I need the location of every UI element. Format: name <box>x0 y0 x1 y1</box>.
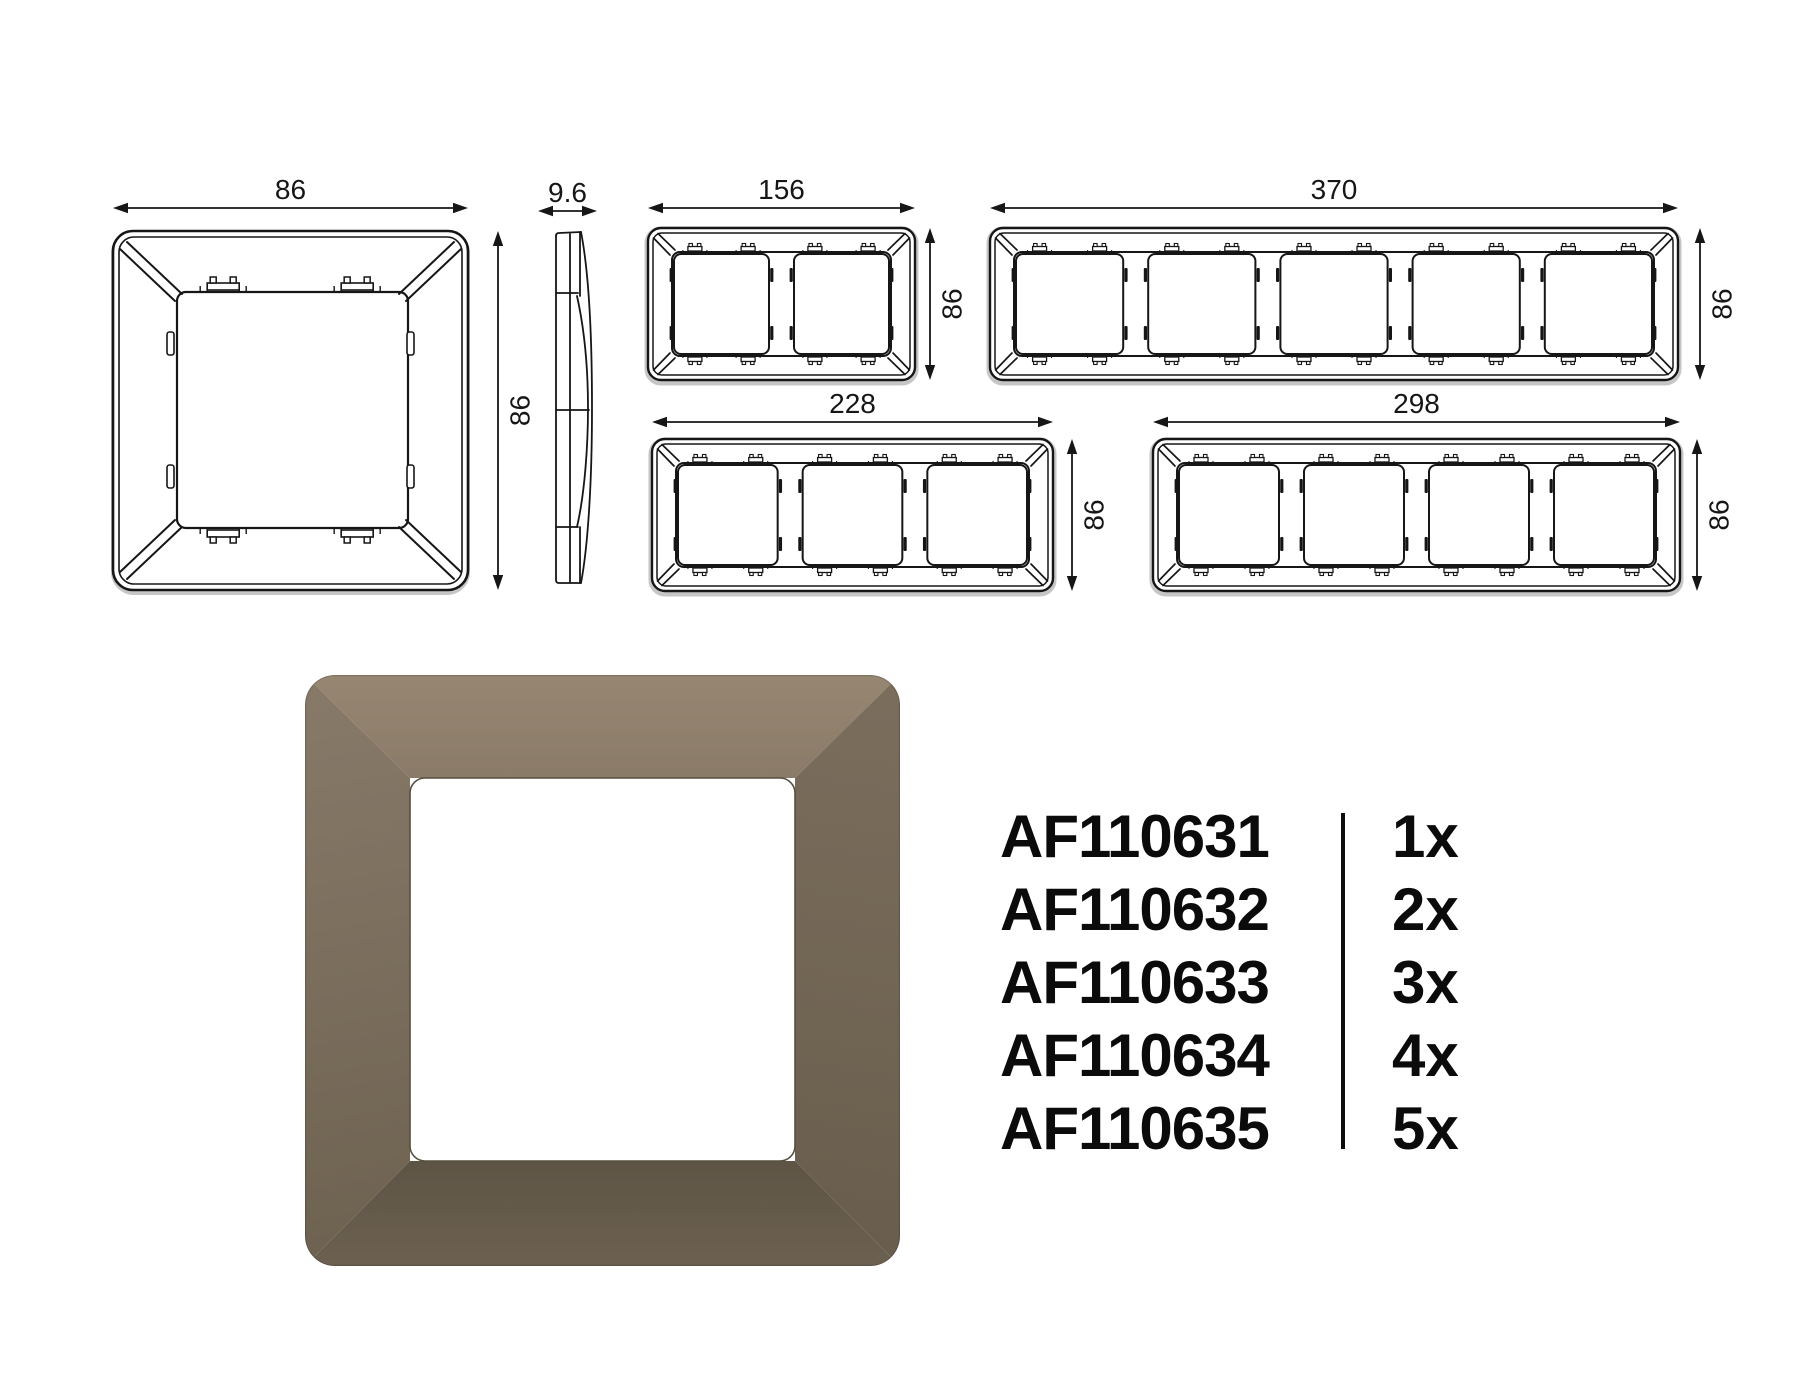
frame-5-gang-drawing: 37086 <box>989 174 1738 383</box>
product-code: AF110632 <box>1000 875 1392 944</box>
dimension-label: 228 <box>829 388 876 419</box>
product-render <box>305 675 900 1266</box>
frame-1-gang-drawing: 8686 <box>113 174 536 593</box>
frame-2-gang-drawing: 15686 <box>647 174 968 383</box>
product-quantity: 4x <box>1392 1021 1459 1090</box>
product-row: AF1106333x <box>1000 946 1459 1019</box>
dimension-label: 86 <box>1704 499 1735 530</box>
table-divider-line <box>1341 813 1345 1149</box>
product-row: AF1106344x <box>1000 1019 1459 1092</box>
product-code: AF110633 <box>1000 948 1392 1017</box>
frame-4-gang-drawing: 29886 <box>1152 388 1735 594</box>
dimension-label: 156 <box>758 174 805 205</box>
product-quantity: 3x <box>1392 948 1459 1017</box>
product-row: AF1106311x <box>1000 800 1459 873</box>
dimension-label: 86 <box>937 288 968 319</box>
dimension-label: 370 <box>1311 174 1358 205</box>
dimension-label: 86 <box>1079 499 1110 530</box>
product-quantity: 5x <box>1392 1094 1459 1163</box>
product-code: AF110634 <box>1000 1021 1392 1090</box>
product-code: AF110631 <box>1000 802 1392 871</box>
dimension-label: 86 <box>275 174 306 205</box>
dimension-label: 298 <box>1393 388 1440 419</box>
product-row: AF1106322x <box>1000 873 1459 946</box>
technical-drawings: 86869.615686370862288629886 <box>0 0 1800 1400</box>
product-quantity: 1x <box>1392 802 1459 871</box>
frame-3-gang-drawing: 22886 <box>651 388 1110 594</box>
product-code-table: AF1106311xAF1106322xAF1106333xAF1106344x… <box>1000 800 1459 1165</box>
product-row: AF1106355x <box>1000 1092 1459 1165</box>
render-frame-opening <box>410 778 795 1161</box>
dimension-label: 86 <box>1707 288 1738 319</box>
product-code: AF110635 <box>1000 1094 1392 1163</box>
datasheet-page: 86869.615686370862288629886 AF1106311xAF… <box>0 0 1800 1400</box>
dimension-label: 9.6 <box>548 177 587 208</box>
frame-side-profile-drawing: 9.6 <box>538 177 597 583</box>
product-quantity: 2x <box>1392 875 1459 944</box>
dimension-label: 86 <box>505 395 536 426</box>
